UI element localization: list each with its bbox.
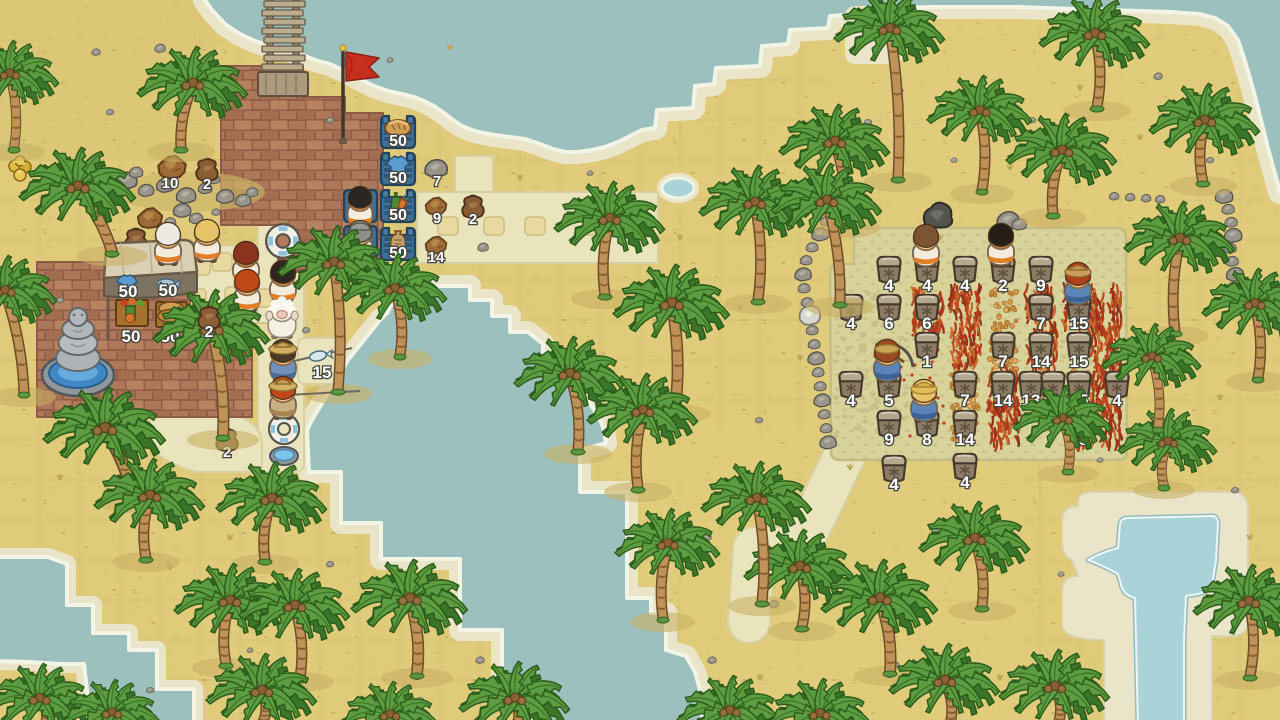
svg-text:7: 7 xyxy=(433,173,441,190)
svg-text:14: 14 xyxy=(1032,352,1051,371)
svg-text:4: 4 xyxy=(922,276,932,295)
svg-text:6: 6 xyxy=(884,314,893,333)
svg-text:7: 7 xyxy=(998,352,1007,371)
svg-text:2: 2 xyxy=(203,176,211,193)
svg-text:15: 15 xyxy=(313,363,332,382)
svg-text:50: 50 xyxy=(122,327,141,346)
svg-text:15: 15 xyxy=(1070,352,1089,371)
svg-text:9: 9 xyxy=(1036,276,1045,295)
svg-text:50: 50 xyxy=(389,170,407,187)
svg-text:4: 4 xyxy=(1112,391,1122,410)
svg-text:2: 2 xyxy=(205,324,214,341)
svg-text:50: 50 xyxy=(389,133,407,150)
svg-text:9: 9 xyxy=(884,430,893,449)
svg-text:14: 14 xyxy=(956,430,975,449)
svg-text:10: 10 xyxy=(162,175,179,192)
svg-text:4: 4 xyxy=(960,276,970,295)
svg-text:4: 4 xyxy=(884,276,894,295)
svg-text:7: 7 xyxy=(1036,314,1045,333)
svg-text:8: 8 xyxy=(922,430,931,449)
svg-text:7: 7 xyxy=(960,391,969,410)
svg-text:14: 14 xyxy=(994,391,1013,410)
svg-text:4: 4 xyxy=(889,475,899,494)
svg-text:50: 50 xyxy=(119,282,138,301)
svg-text:2: 2 xyxy=(469,211,477,228)
svg-text:9: 9 xyxy=(433,210,441,227)
svg-text:14: 14 xyxy=(428,249,445,266)
svg-text:1: 1 xyxy=(922,352,931,371)
svg-text:4: 4 xyxy=(846,391,856,410)
svg-text:2: 2 xyxy=(998,276,1007,295)
svg-text:4: 4 xyxy=(960,473,970,492)
svg-text:15: 15 xyxy=(1070,314,1089,333)
svg-text:4: 4 xyxy=(846,314,856,333)
svg-text:5: 5 xyxy=(884,391,893,410)
svg-text:50: 50 xyxy=(159,281,178,300)
svg-text:50: 50 xyxy=(389,207,407,224)
svg-text:6: 6 xyxy=(922,314,931,333)
